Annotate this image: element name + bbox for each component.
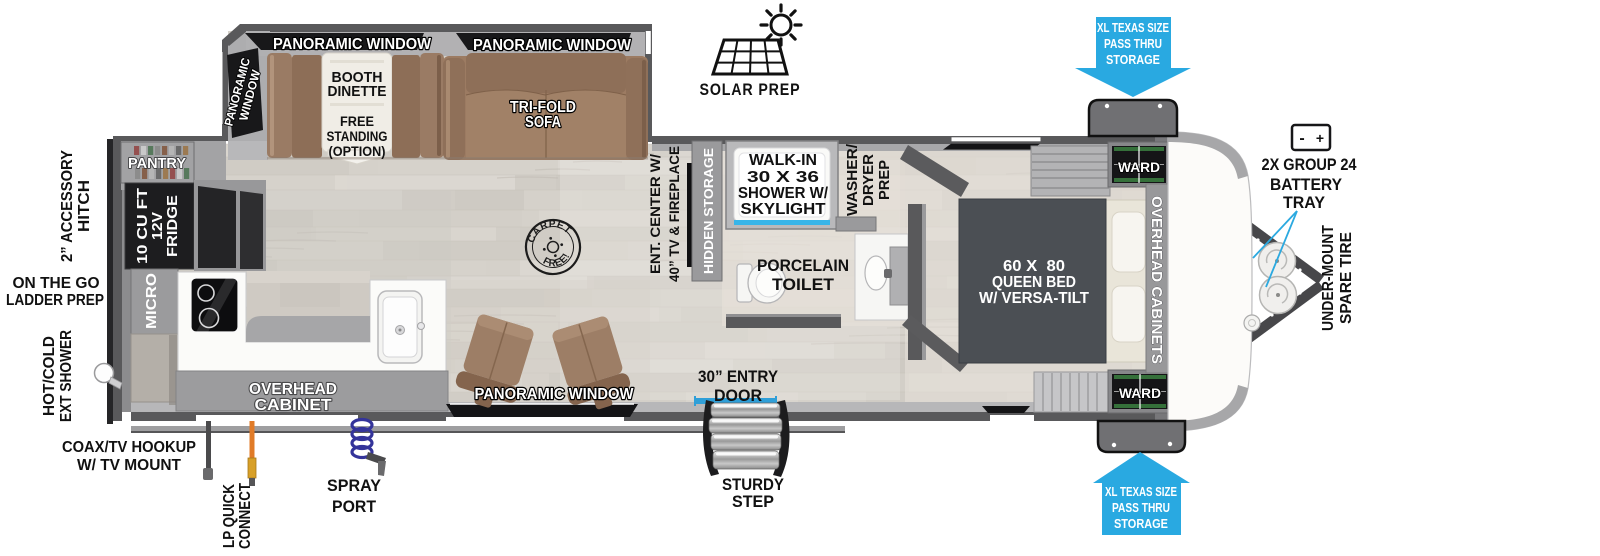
svg-text:XL TEXAS SIZE: XL TEXAS SIZE: [1097, 20, 1169, 35]
svg-text:STURDY: STURDY: [722, 476, 784, 494]
svg-text:PASS THRU: PASS THRU: [1104, 36, 1162, 51]
svg-text:HIDDEN STORAGE: HIDDEN STORAGE: [702, 148, 716, 274]
svg-text:30 X 36: 30 X 36: [747, 169, 820, 186]
svg-text:UNDER-MOUNT: UNDER-MOUNT: [1320, 225, 1337, 331]
svg-text:W/ TV MOUNT: W/ TV MOUNT: [77, 457, 181, 474]
svg-text:MICRO: MICRO: [144, 273, 160, 329]
svg-text:+: +: [1316, 130, 1324, 146]
svg-text:-: -: [1299, 130, 1304, 147]
svg-text:LP QUICK: LP QUICK: [221, 483, 238, 548]
svg-text:SHOWER W/: SHOWER W/: [738, 185, 829, 202]
svg-text:PANORAMIC WINDOW: PANORAMIC WINDOW: [273, 36, 432, 53]
svg-text:DINETTE: DINETTE: [328, 83, 387, 100]
svg-text:PREP: PREP: [876, 160, 893, 200]
svg-text:HITCH: HITCH: [76, 180, 93, 232]
svg-text:EXT SHOWER: EXT SHOWER: [58, 330, 75, 422]
svg-text:SOLAR PREP: SOLAR PREP: [700, 80, 801, 99]
svg-text:60 X 80: 60 X 80: [1003, 258, 1065, 275]
svg-text:WALK-IN: WALK-IN: [749, 152, 817, 169]
svg-text:ENT. CENTER W/: ENT. CENTER W/: [647, 154, 663, 274]
svg-text:FREE: FREE: [340, 114, 374, 129]
svg-text:FRIDGE: FRIDGE: [165, 195, 181, 257]
svg-text:SPRAY: SPRAY: [327, 477, 381, 495]
svg-text:SKYLIGHT: SKYLIGHT: [741, 201, 827, 218]
svg-text:STORAGE: STORAGE: [1114, 516, 1168, 531]
svg-text:SOFA: SOFA: [525, 114, 561, 131]
svg-text:WASHER/: WASHER/: [844, 143, 861, 216]
svg-text:CONNECT: CONNECT: [237, 483, 254, 549]
svg-text:STANDING: STANDING: [327, 129, 388, 144]
svg-text:CABINET: CABINET: [255, 397, 332, 414]
svg-text:DRYER: DRYER: [860, 154, 877, 206]
svg-text:QUEEN BED: QUEEN BED: [992, 274, 1076, 291]
svg-text:2” ACCESSORY: 2” ACCESSORY: [59, 150, 76, 262]
svg-text:XL TEXAS SIZE: XL TEXAS SIZE: [1105, 484, 1177, 499]
svg-text:STEP: STEP: [732, 493, 774, 511]
svg-text:PORT: PORT: [332, 498, 376, 516]
svg-text:30” ENTRY: 30” ENTRY: [698, 367, 779, 386]
svg-text:DOOR: DOOR: [714, 386, 762, 405]
svg-text:WARD: WARD: [1118, 159, 1160, 175]
svg-text:12V: 12V: [150, 212, 166, 240]
svg-text:PASS THRU: PASS THRU: [1112, 500, 1170, 515]
svg-text:PANORAMIC WINDOW: PANORAMIC WINDOW: [473, 37, 632, 54]
svg-text:WARD: WARD: [1119, 385, 1161, 401]
svg-text:HOT/COLD: HOT/COLD: [41, 336, 58, 416]
svg-text:10 CU FT: 10 CU FT: [135, 188, 151, 264]
svg-text:BATTERY: BATTERY: [1270, 175, 1343, 194]
svg-text:(OPTION): (OPTION): [329, 144, 386, 159]
svg-text:TOILET: TOILET: [772, 275, 835, 294]
svg-text:2X GROUP 24: 2X GROUP 24: [1262, 155, 1357, 174]
svg-text:OVERHEAD CABINETS: OVERHEAD CABINETS: [1148, 196, 1164, 364]
svg-text:STORAGE: STORAGE: [1106, 52, 1160, 67]
svg-text:COAX/TV HOOKUP: COAX/TV HOOKUP: [62, 439, 196, 456]
svg-text:LADDER PREP: LADDER PREP: [6, 292, 104, 309]
svg-text:PANTRY: PANTRY: [128, 155, 186, 172]
svg-text:OVERHEAD: OVERHEAD: [249, 381, 337, 398]
svg-text:W/ VERSA-TILT: W/ VERSA-TILT: [979, 290, 1089, 307]
svg-text:PANORAMIC WINDOW: PANORAMIC WINDOW: [475, 386, 635, 403]
svg-text:TRAY: TRAY: [1283, 193, 1326, 212]
svg-text:ON THE GO: ON THE GO: [13, 275, 100, 292]
svg-text:PORCELAIN: PORCELAIN: [757, 256, 849, 275]
svg-text:SPARE TIRE: SPARE TIRE: [1338, 232, 1355, 324]
svg-text:40” TV & FIREPLACE: 40” TV & FIREPLACE: [666, 146, 682, 282]
